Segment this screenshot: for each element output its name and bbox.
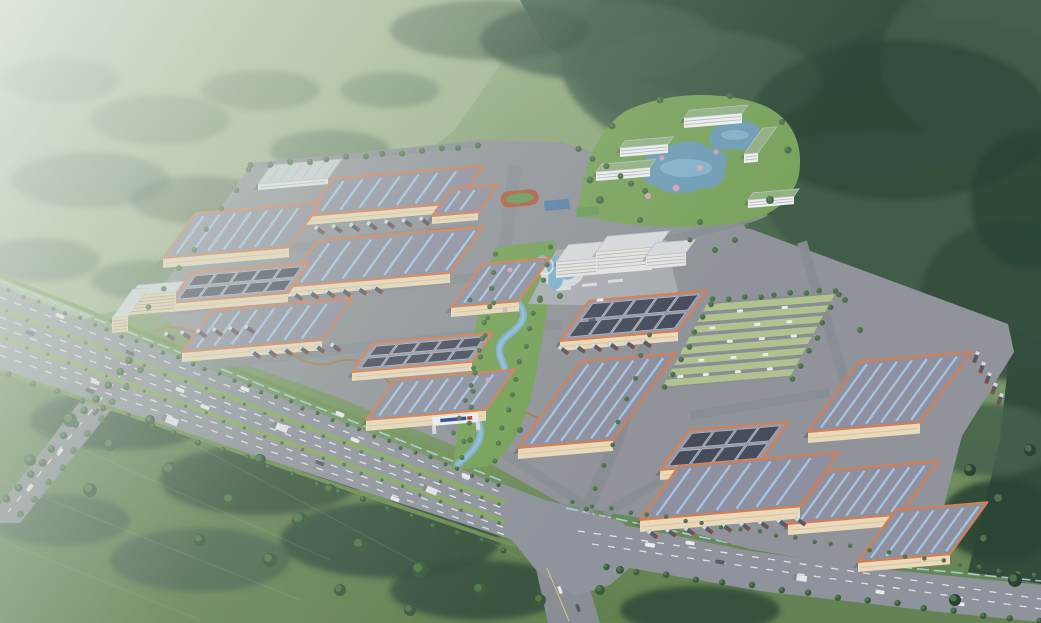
industrial-park-aerial-rendering: Aerial bird's-eye architectural renderin… xyxy=(0,0,1041,623)
haze-overlay xyxy=(0,0,1041,623)
aerial-rendering-stage: Aerial bird's-eye architectural renderin… xyxy=(0,0,1041,623)
